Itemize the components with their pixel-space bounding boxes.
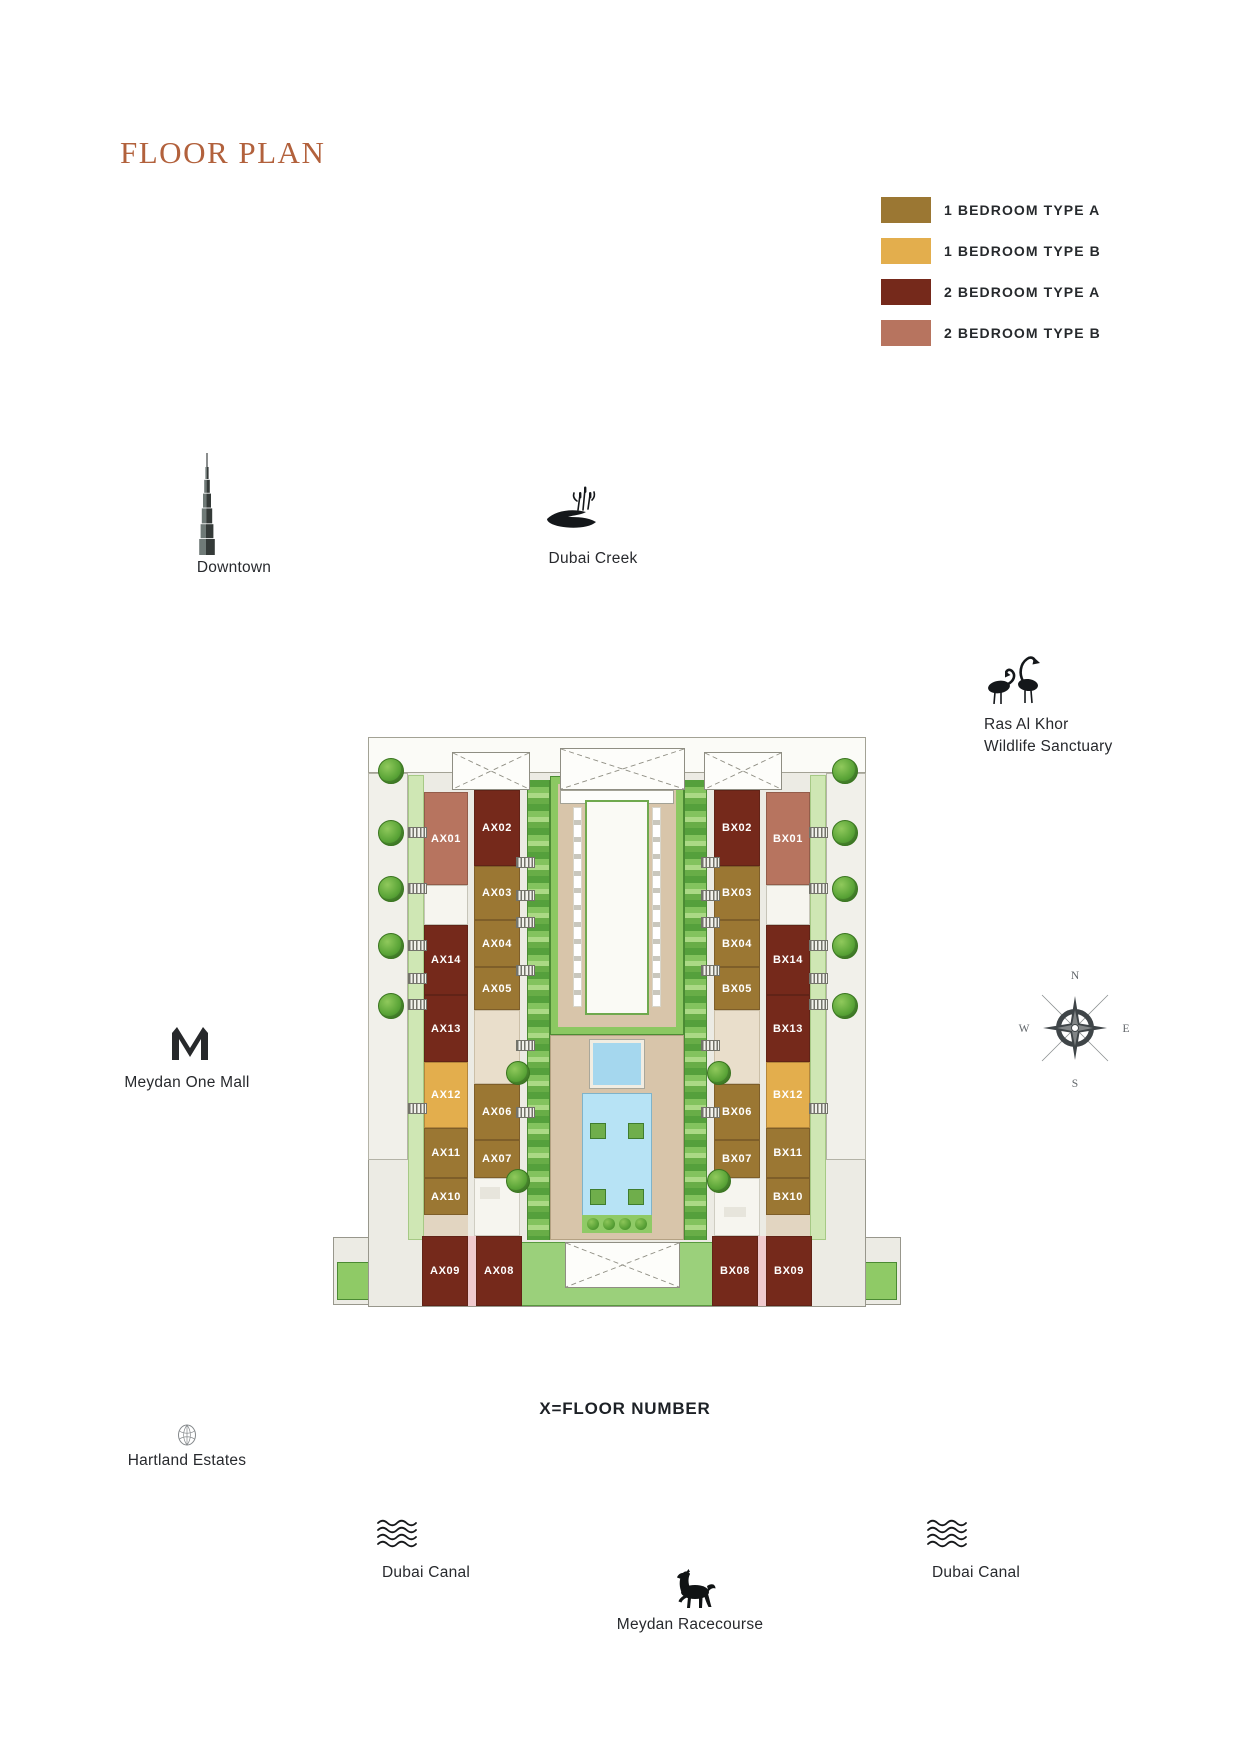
unit-AX09: AX09 — [422, 1236, 468, 1306]
unit-label: BX12 — [773, 1089, 803, 1101]
page-title: FLOOR PLAN — [120, 135, 325, 171]
stair-hatch-icon — [701, 965, 720, 976]
unit-AX14: AX14 — [424, 925, 468, 995]
unit-label: AX02 — [482, 822, 512, 834]
party-wall-right — [758, 1236, 766, 1306]
void-x-box — [560, 748, 685, 790]
wing-lawn-left — [337, 1262, 369, 1300]
compass-w: W — [1019, 1023, 1030, 1035]
legend: 1 BEDROOM TYPE A 1 BEDROOM TYPE B 2 BEDR… — [881, 197, 1101, 361]
compass-rose-icon: N E S W — [1013, 966, 1137, 1090]
tree-icon — [832, 876, 858, 902]
unit-label: AX11 — [431, 1147, 460, 1159]
tree-icon — [707, 1061, 731, 1085]
unit-AX01: AX01 — [424, 792, 468, 885]
legend-item-2br-a: 2 BEDROOM TYPE A — [881, 279, 1101, 305]
stair-hatch-icon — [516, 890, 535, 901]
stair-hatch-icon — [701, 857, 720, 868]
pool-planter — [628, 1189, 644, 1205]
compass-n: N — [1071, 970, 1080, 982]
tree-icon — [506, 1169, 530, 1193]
legend-item-2br-b: 2 BEDROOM TYPE B — [881, 320, 1101, 346]
unit-AX06: AX06 — [474, 1084, 520, 1140]
unit-BX09: BX09 — [766, 1236, 812, 1306]
sun-loungers-right — [652, 807, 661, 1007]
dubai-canal-east-label: Dubai Canal — [906, 1564, 1046, 1582]
unit-AX02: AX02 — [474, 790, 520, 866]
unit-BX03: BX03 — [714, 866, 760, 920]
burj-khalifa-icon — [196, 453, 218, 555]
service-strip-right — [766, 1215, 810, 1236]
stair-hatch-icon — [701, 1107, 720, 1118]
kids-pool — [590, 1040, 644, 1088]
unit-label: AX05 — [482, 983, 512, 995]
unit-BX11: BX11 — [766, 1128, 810, 1178]
shrub-icon — [635, 1218, 647, 1230]
unit-AX12: AX12 — [424, 1062, 468, 1128]
stair-hatch-icon — [809, 827, 828, 838]
stair-hatch-icon — [516, 1107, 535, 1118]
unit-AX11: AX11 — [424, 1128, 468, 1178]
unit-label: AX01 — [431, 833, 461, 845]
unit-label: AX07 — [482, 1153, 512, 1165]
stair-hatch-icon — [408, 999, 427, 1010]
unit-label: BX14 — [773, 954, 803, 966]
void-x-box — [452, 752, 530, 790]
dubai-canal-west-label: Dubai Canal — [356, 1564, 496, 1582]
floor-plan-page: FLOOR PLAN 1 BEDROOM TYPE A 1 BEDROOM TY… — [0, 0, 1241, 1754]
dubai-creek-label: Dubai Creek — [523, 550, 663, 568]
unit-label: BX08 — [720, 1265, 750, 1277]
unit-BX05: BX05 — [714, 967, 760, 1010]
hartland-estates-label: Hartland Estates — [97, 1452, 277, 1470]
legend-item-1br-b: 1 BEDROOM TYPE B — [881, 238, 1101, 264]
compass-s: S — [1072, 1078, 1078, 1090]
tree-icon — [378, 758, 404, 784]
stair-hatch-icon — [809, 940, 828, 951]
stair-hatch-icon — [516, 965, 535, 976]
unit-BX04: BX04 — [714, 920, 760, 967]
furniture-sketch — [480, 1187, 500, 1199]
tree-icon — [378, 876, 404, 902]
unit-label: BX02 — [722, 822, 752, 834]
tree-icon — [707, 1169, 731, 1193]
tree-icon — [506, 1061, 530, 1085]
legend-label: 1 BEDROOM TYPE B — [944, 243, 1101, 259]
void-x-box — [565, 1242, 680, 1288]
unit-AX03: AX03 — [474, 866, 520, 920]
furniture-sketch — [724, 1207, 746, 1217]
tree-icon — [378, 820, 404, 846]
stair-hatch-icon — [809, 1103, 828, 1114]
lobby-left — [424, 885, 468, 925]
tree-icon — [832, 933, 858, 959]
unit-BX12: BX12 — [766, 1062, 810, 1128]
stair-hatch-icon — [809, 883, 828, 894]
courtyard-lounge-area — [585, 800, 649, 1015]
downtown-label: Downtown — [164, 559, 304, 577]
unit-AX13: AX13 — [424, 995, 468, 1062]
shrub-icon — [619, 1218, 631, 1230]
stair-hatch-icon — [701, 917, 720, 928]
stair-hatch-icon — [809, 973, 828, 984]
dubai-creek-icon — [546, 485, 600, 537]
tree-icon — [378, 993, 404, 1019]
unit-label: BX10 — [773, 1191, 803, 1203]
stair-hatch-icon — [516, 857, 535, 868]
tree-icon — [832, 993, 858, 1019]
unit-AX05: AX05 — [474, 967, 520, 1010]
legend-item-1br-a: 1 BEDROOM TYPE A — [881, 197, 1101, 223]
unit-label: AX12 — [431, 1089, 461, 1101]
shrub-icon — [603, 1218, 615, 1230]
stair-hatch-icon — [408, 940, 427, 951]
waves-icon — [924, 1518, 970, 1548]
unit-label: BX03 — [722, 887, 752, 899]
stair-hatch-icon — [516, 917, 535, 928]
unit-BX08: BX08 — [712, 1236, 758, 1306]
meydan-one-mall-icon — [170, 1024, 210, 1062]
sun-loungers-left — [573, 807, 582, 1007]
unit-AX08: AX08 — [476, 1236, 522, 1306]
legend-label: 2 BEDROOM TYPE A — [944, 284, 1100, 300]
void-x-box — [704, 752, 782, 790]
stair-hatch-icon — [408, 883, 427, 894]
floorplan-canvas: AX01AX02AX03AX04AX05AX06AX07AX08AX09AX10… — [368, 737, 866, 1307]
unit-label: AX09 — [430, 1265, 460, 1277]
flamingos-icon — [982, 648, 1044, 704]
lobby-right — [766, 885, 810, 925]
compass-e: E — [1122, 1023, 1129, 1035]
hedge-right — [684, 780, 707, 1240]
service-strip-left — [424, 1215, 468, 1236]
hartland-estates-icon — [174, 1422, 200, 1448]
legend-swatch-2br-b — [881, 320, 931, 346]
waves-icon — [374, 1518, 420, 1548]
unit-BX01: BX01 — [766, 792, 810, 885]
stair-hatch-icon — [701, 1040, 720, 1051]
unit-label: BX11 — [773, 1147, 802, 1159]
ras-al-khor-label-line2: Wildlife Sanctuary — [984, 736, 1113, 758]
stair-hatch-icon — [701, 890, 720, 901]
ras-al-khor-label-line1: Ras Al Khor — [984, 714, 1113, 736]
unit-label: AX10 — [431, 1191, 461, 1203]
legend-label: 1 BEDROOM TYPE A — [944, 202, 1100, 218]
unit-label: AX06 — [482, 1106, 512, 1118]
unit-label: BX06 — [722, 1106, 752, 1118]
unit-label: BX07 — [722, 1153, 752, 1165]
stair-hatch-icon — [408, 1103, 427, 1114]
unit-label: AX14 — [431, 954, 461, 966]
unit-label: BX01 — [773, 833, 803, 845]
shrub-icon — [587, 1218, 599, 1230]
unit-BX14: BX14 — [766, 925, 810, 995]
horse-icon — [668, 1568, 718, 1610]
stair-hatch-icon — [408, 973, 427, 984]
unit-BX13: BX13 — [766, 995, 810, 1062]
stair-hatch-icon — [516, 1040, 535, 1051]
floor-number-note: X=FLOOR NUMBER — [530, 1399, 720, 1419]
ras-al-khor-label: Ras Al Khor Wildlife Sanctuary — [984, 714, 1113, 758]
unit-label: AX13 — [431, 1023, 461, 1035]
tree-icon — [378, 933, 404, 959]
unit-label: AX08 — [484, 1265, 514, 1277]
unit-BX06: BX06 — [714, 1084, 760, 1140]
unit-label: AX04 — [482, 938, 512, 950]
hedge-left — [527, 780, 550, 1240]
unit-label: BX05 — [722, 983, 752, 995]
unit-label: BX13 — [773, 1023, 803, 1035]
unit-label: AX03 — [482, 887, 512, 899]
unit-label: BX04 — [722, 938, 752, 950]
stair-hatch-icon — [809, 999, 828, 1010]
swimming-pool — [582, 1093, 652, 1233]
legend-swatch-1br-b — [881, 238, 931, 264]
legend-swatch-2br-a — [881, 279, 931, 305]
tree-icon — [832, 758, 858, 784]
unit-BX10: BX10 — [766, 1178, 810, 1215]
meydan-one-mall-label: Meydan One Mall — [97, 1074, 277, 1092]
tree-icon — [832, 820, 858, 846]
stair-hatch-icon — [408, 827, 427, 838]
unit-BX02: BX02 — [714, 790, 760, 866]
pool-planter — [590, 1189, 606, 1205]
pool-planter — [590, 1123, 606, 1139]
unit-AX04: AX04 — [474, 920, 520, 967]
meydan-racecourse-label: Meydan Racecourse — [600, 1616, 780, 1634]
unit-AX10: AX10 — [424, 1178, 468, 1215]
wing-lawn-right — [865, 1262, 897, 1300]
legend-swatch-1br-a — [881, 197, 931, 223]
pool-planter — [628, 1123, 644, 1139]
unit-label: BX09 — [774, 1265, 804, 1277]
party-wall-left — [468, 1236, 476, 1306]
legend-label: 2 BEDROOM TYPE B — [944, 325, 1101, 341]
